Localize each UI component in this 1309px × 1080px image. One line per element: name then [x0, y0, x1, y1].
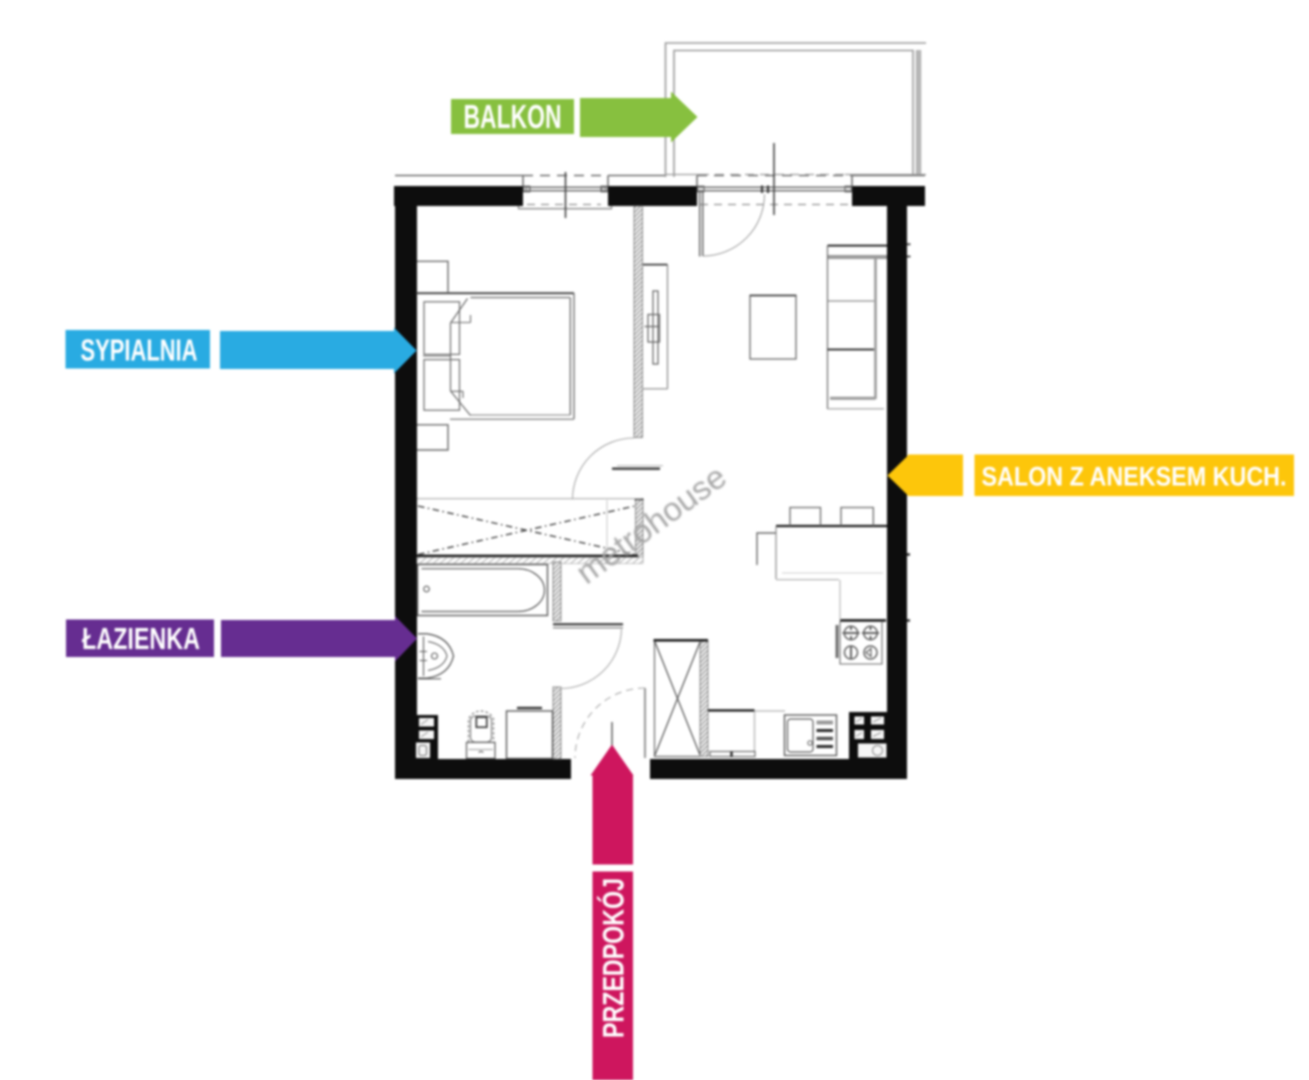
- svg-text:SALON Z ANEKSEM KUCH.: SALON Z ANEKSEM KUCH.: [982, 462, 1287, 492]
- svg-text:PRZEDPOKÓJ: PRZEDPOKÓJ: [597, 878, 631, 1038]
- svg-text:metrohouse: metrohouse: [569, 458, 733, 591]
- svg-text:SYPIALNIA: SYPIALNIA: [81, 333, 198, 368]
- svg-text:ŁAZIENKA: ŁAZIENKA: [82, 621, 200, 656]
- svg-text:BALKON: BALKON: [464, 98, 562, 135]
